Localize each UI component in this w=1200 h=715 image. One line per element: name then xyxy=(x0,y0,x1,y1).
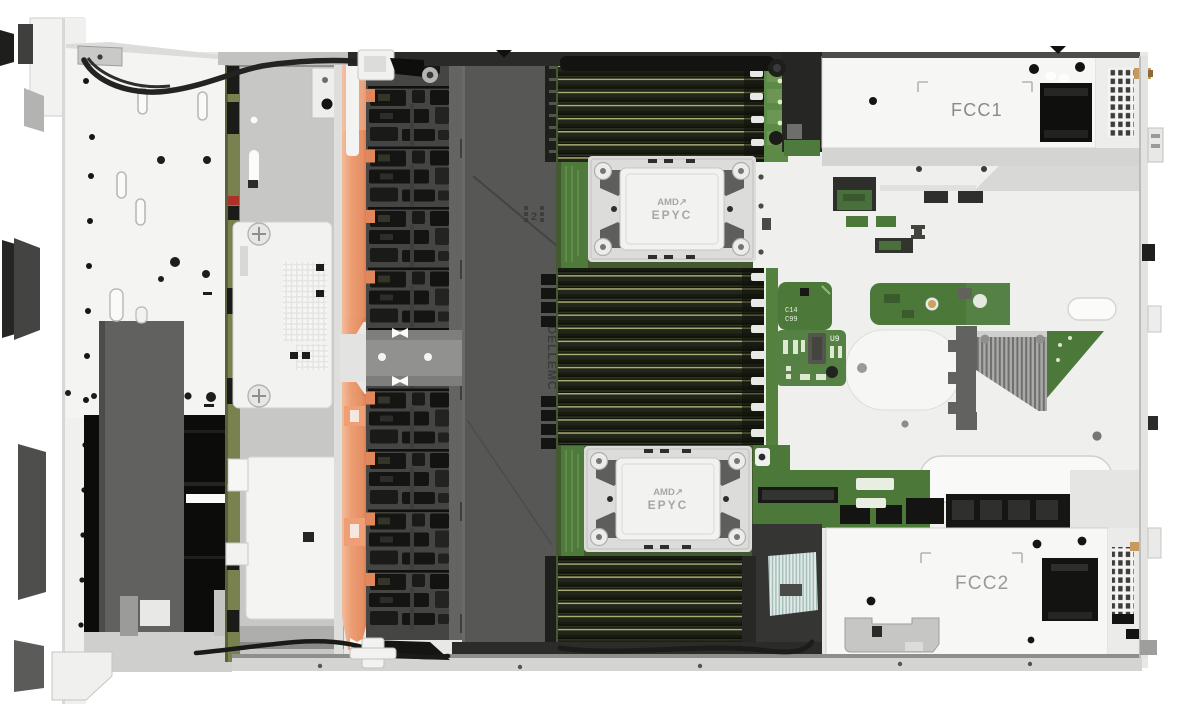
svg-text:U9: U9 xyxy=(830,335,840,344)
svg-text:FCC1: FCC1 xyxy=(951,100,1003,120)
svg-text:C14: C14 xyxy=(785,307,798,315)
svg-text:2: 2 xyxy=(531,211,537,223)
svg-text:FCC2: FCC2 xyxy=(955,573,1009,594)
svg-text:C99: C99 xyxy=(785,316,798,324)
